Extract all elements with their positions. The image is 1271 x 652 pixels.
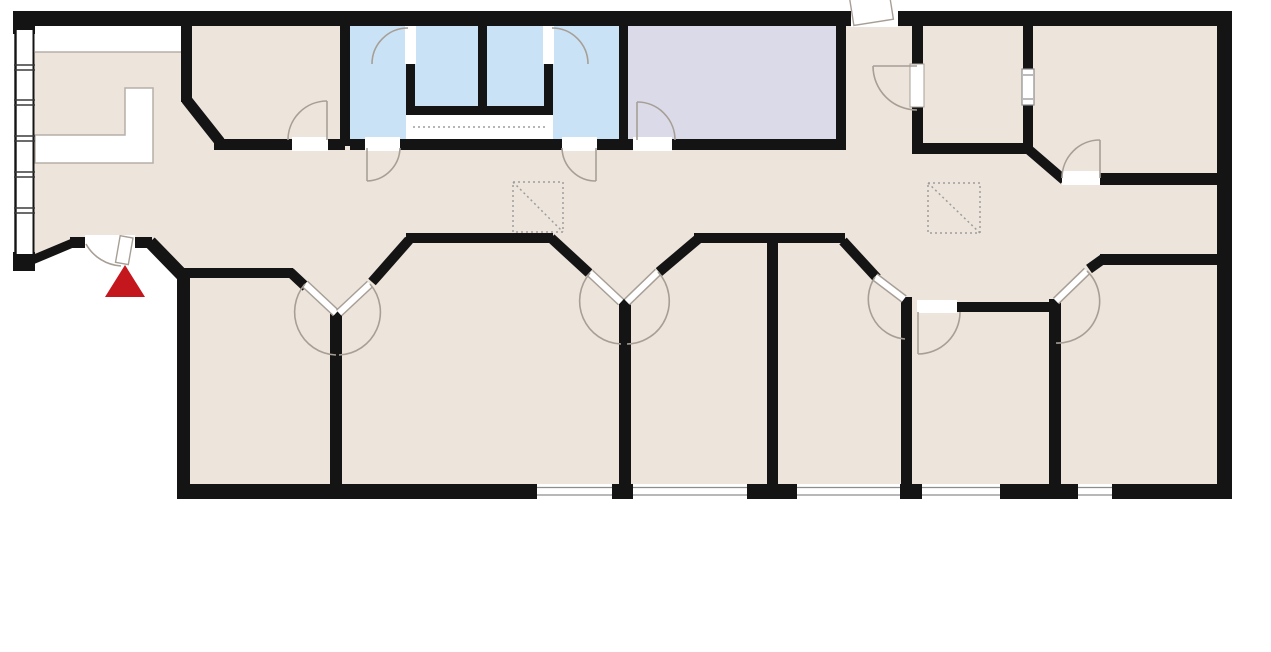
- opening-blue-left: [365, 137, 400, 151]
- wall-roomF-bottom: [1100, 173, 1217, 185]
- wall-div-B1-B2: [330, 310, 342, 491]
- room-lavender: [628, 26, 836, 141]
- opening-blue-right: [562, 137, 597, 151]
- window-band-glass: [15, 30, 34, 254]
- wall-div-B2-B3: [619, 299, 631, 491]
- opening-stall-left: [405, 26, 416, 64]
- wall-roomB6-top: [1100, 254, 1217, 265]
- room-fills: [350, 26, 836, 141]
- wall-stall-bottom: [406, 106, 553, 115]
- wall-lavender-right: [836, 26, 846, 150]
- wall-bath-bottom-1: [350, 139, 365, 150]
- wall-left-lower: [177, 272, 190, 499]
- opening-vestibule: [910, 64, 924, 107]
- room-blue-stall-left: [415, 26, 478, 107]
- window-bottom-4: [922, 484, 1000, 499]
- wall-roomA-bottom: [214, 139, 292, 150]
- opening-roomB5: [917, 300, 957, 313]
- wall-roomB1-top: [177, 268, 293, 278]
- wall-roomB2-top: [406, 233, 553, 243]
- interior-window-EF: [1022, 69, 1034, 105]
- wall-roomEF-div-lower: [1023, 103, 1033, 148]
- wall-bath-bottom-2: [400, 139, 562, 150]
- opening-roomA: [292, 137, 328, 151]
- window-bottom-1: [537, 484, 612, 499]
- room-blue-right: [553, 26, 619, 140]
- wall-div-B5-B6: [1049, 299, 1061, 491]
- wall-div-B4-B5: [901, 297, 912, 491]
- wall-top-outer: [13, 11, 1232, 26]
- wall-lavender-bottom: [672, 139, 841, 150]
- wall-roomE-bottom: [912, 143, 1033, 154]
- wall-div-B3-B4: [767, 238, 778, 491]
- wall-roomE-left-lower: [912, 106, 923, 148]
- wall-roomEF-div-upper: [1023, 26, 1033, 71]
- opening-lavender: [633, 137, 672, 151]
- opening-stall-right: [543, 26, 554, 64]
- wall-roomA-left: [181, 26, 192, 102]
- reception-top-band: [33, 26, 182, 52]
- room-blue-stall-right: [487, 26, 544, 107]
- wall-bath-left: [340, 26, 350, 146]
- floor-plan-canvas: [0, 0, 1271, 652]
- wall-stall-div-mid: [478, 26, 487, 115]
- window-band-left: [14, 28, 35, 255]
- wall-roomE-left-upper: [912, 26, 923, 66]
- window-bottom-5: [1078, 484, 1112, 499]
- window-bottom-2: [633, 484, 747, 499]
- wall-right-outer: [1217, 11, 1232, 499]
- wall-blue-lavender-div: [619, 26, 628, 150]
- opening-roomF: [1062, 171, 1100, 185]
- wall-roomB5-top: [955, 302, 1052, 312]
- floor-plan-drawing: [0, 0, 1271, 652]
- window-bottom-3: [797, 484, 900, 499]
